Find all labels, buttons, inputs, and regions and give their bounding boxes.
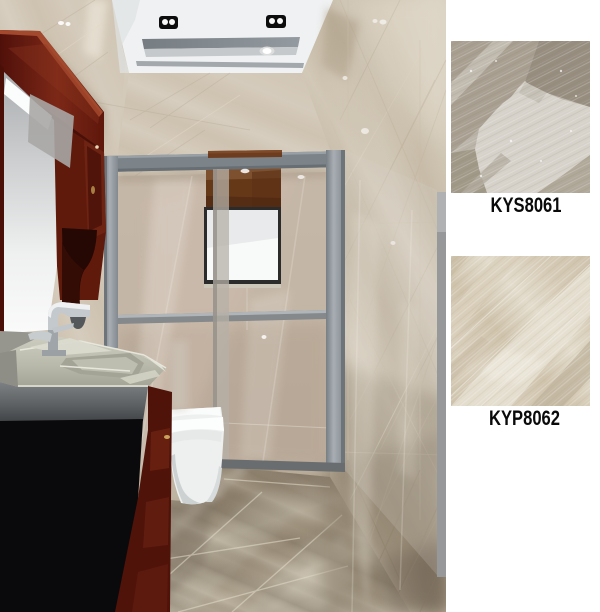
svg-text:KYS8061: KYS8061 [491,194,562,217]
svg-text:KYP8062: KYP8062 [489,407,560,430]
